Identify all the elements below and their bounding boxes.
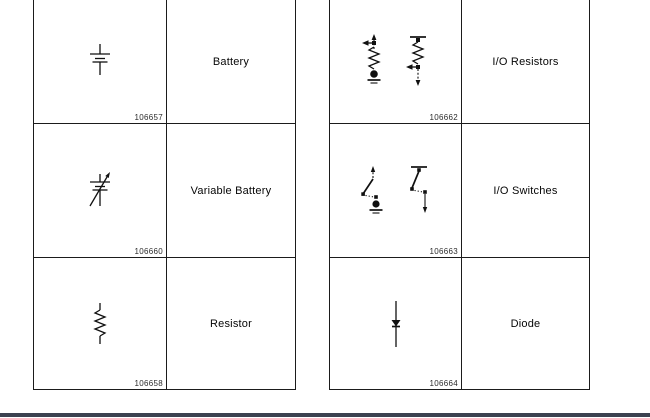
figure-number: 106664 (430, 379, 459, 388)
table-row: 106664 Diode (330, 258, 589, 389)
label-cell: Battery (167, 0, 295, 123)
label-cell: I/O Resistors (462, 0, 589, 123)
table-row: 106657 Battery (34, 0, 295, 124)
io-switches-icon (357, 164, 435, 218)
resistor-icon (92, 301, 108, 347)
symbol-table-right: 106662 I/O Resistors (329, 0, 590, 390)
output-switch-icon (405, 164, 435, 218)
battery-icon (88, 42, 112, 82)
symbol-cell: 106662 (330, 0, 462, 123)
symbol-cell: 106660 (34, 124, 167, 257)
figure-number: 106660 (135, 247, 164, 256)
symbol-label: I/O Resistors (492, 56, 558, 68)
symbol-label: Resistor (210, 318, 252, 330)
figure-number: 106658 (135, 379, 164, 388)
table-row: 106663 I/O Switches (330, 124, 589, 258)
figure-number: 106657 (135, 113, 164, 122)
page-bottom-rule (0, 413, 650, 417)
symbol-table-left: 106657 Battery 106660 Variab (33, 0, 296, 390)
figure-number: 106662 (430, 113, 459, 122)
symbol-cell: 106657 (34, 0, 167, 123)
label-cell: Resistor (167, 258, 295, 389)
symbol-cell: 106658 (34, 258, 167, 389)
schematic-symbol-legend: 106657 Battery 106660 Variab (0, 0, 650, 418)
input-resistor-icon (361, 33, 387, 91)
table-row: 106660 Variable Battery (34, 124, 295, 258)
symbol-label: Variable Battery (191, 185, 272, 197)
symbol-cell: 106664 (330, 258, 462, 389)
symbol-label: Diode (511, 318, 541, 330)
symbol-cell: 106663 (330, 124, 462, 257)
diode-icon (388, 299, 404, 349)
variable-battery-icon (86, 168, 114, 214)
label-cell: Variable Battery (167, 124, 295, 257)
label-cell: Diode (462, 258, 589, 389)
figure-number: 106663 (430, 247, 459, 256)
table-row: 106662 I/O Resistors (330, 0, 589, 124)
input-switch-icon (357, 164, 387, 218)
label-cell: I/O Switches (462, 124, 589, 257)
symbol-label: Battery (213, 56, 249, 68)
symbol-label: I/O Switches (493, 185, 557, 197)
table-row: 106658 Resistor (34, 258, 295, 389)
output-resistor-icon (405, 33, 431, 91)
io-resistors-icon (361, 33, 431, 91)
